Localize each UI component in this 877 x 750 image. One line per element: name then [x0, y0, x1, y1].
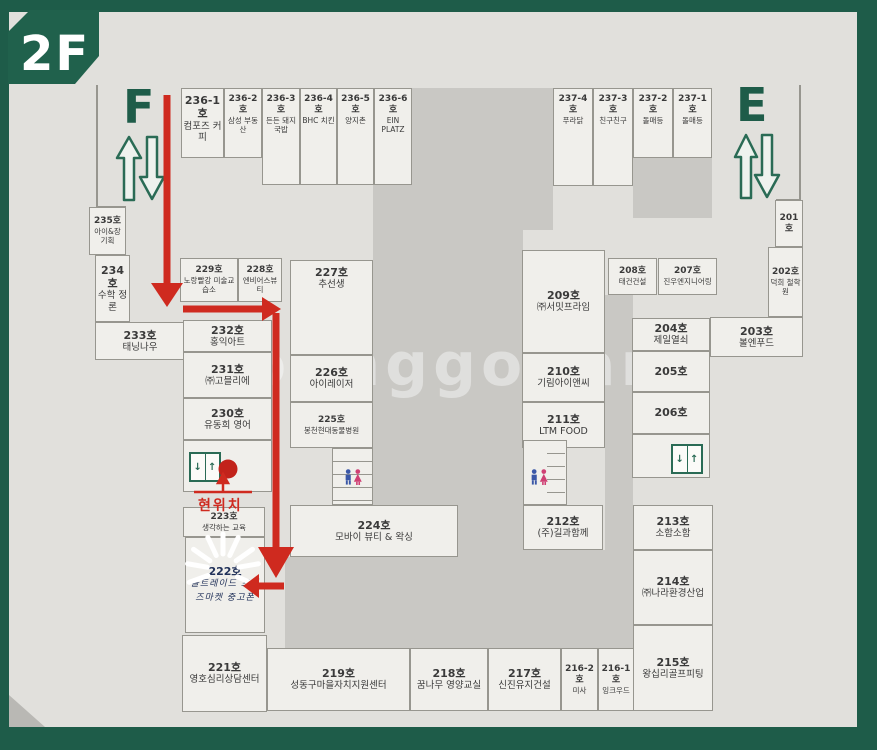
room-209: 209호㈜서밋프라임 [522, 250, 605, 353]
room-number: 237-4호 [555, 94, 591, 116]
floor-label: 2F [20, 26, 90, 82]
room-number: 236-3호 [264, 94, 298, 116]
room-number: 228호 [246, 265, 273, 276]
elevator-door-down: ↓ [673, 446, 688, 472]
elevator-cell-left: ↓↑ [183, 440, 272, 492]
room-number: 215호 [656, 656, 689, 669]
room-number: 205호 [654, 365, 687, 378]
elevator-door-up: ↑ [206, 454, 220, 480]
room-229: 229호노랑빨강 미술교습소 [180, 258, 238, 302]
room-name: 진우엔지니어링 [663, 277, 711, 286]
room-number: 235호 [94, 216, 121, 227]
room-number: 234호 [97, 264, 128, 291]
room-number: 236-1호 [183, 94, 222, 121]
room-number: 214호 [656, 575, 689, 588]
room-215: 215호왕십리골프피팅 [633, 625, 713, 711]
room-number: 211호 [547, 413, 580, 426]
room-name: ㈜나라환경산업 [642, 588, 704, 600]
room-237-3: 237-3호친구친구 [593, 88, 633, 186]
room-222: 222호올트레이드 프렌즈마켓 중고폰 [185, 537, 265, 633]
restroom-icon [341, 469, 365, 485]
room-number: 201호 [777, 213, 801, 235]
room-216-2: 216-2호미사 [561, 648, 598, 711]
room-208: 208호태건건설 [608, 258, 657, 295]
room-name: 생각하는 교육 [202, 523, 246, 532]
room-name: 양지촌 [345, 116, 366, 125]
elevator-icon: ↓↑ [671, 444, 703, 474]
frame-left [0, 0, 9, 750]
room-number: 237-3호 [595, 94, 631, 116]
room-number: 231호 [211, 363, 244, 376]
room-name: 든든 돼지국밥 [264, 116, 298, 134]
room-number: 216-2호 [563, 664, 596, 686]
elevator-door-up: ↑ [688, 446, 702, 472]
courtyard-bottom [285, 557, 523, 648]
room-number: 236-5호 [339, 94, 372, 116]
room-number: 216-1호 [600, 664, 632, 686]
room-number: 209호 [547, 289, 580, 302]
room-204: 204호제일열쇠 [632, 318, 710, 351]
room-name: 미사 [573, 686, 587, 695]
room-236-3: 236-3호든든 돼지국밥 [262, 88, 300, 185]
room-name: 돌매등 [682, 116, 703, 125]
room-236-6: 236-6호EIN PLATZ [374, 88, 412, 185]
room-name: 덕희 철학원 [770, 278, 801, 296]
room-237-4: 237-4호푸라닭 [553, 88, 593, 186]
room-name: 잉크우드 [602, 686, 630, 695]
room-name: ㈜고믈리에 [205, 376, 249, 388]
room-number: 227호 [315, 266, 348, 279]
room-name: 노랑빨강 미술교습소 [182, 276, 236, 294]
room-221: 221호영호심리상담센터 [182, 635, 267, 712]
room-name: 삼성 부동산 [226, 116, 260, 134]
elevator-door-down: ↓ [191, 454, 206, 480]
room-212: 212호(주)길과함께 [523, 505, 603, 550]
room-number: 237-1호 [675, 94, 710, 116]
room-number: 204호 [654, 322, 687, 335]
room-name: 신진유지건설 [498, 680, 550, 692]
room-number: 221호 [208, 661, 241, 674]
room-name: ㈜서밋프라임 [537, 302, 590, 314]
room-name: 모바이 뷰티 & 왁싱 [335, 532, 413, 544]
room-number: 212호 [546, 515, 579, 528]
room-237-1: 237-1호돌매등 [673, 88, 712, 158]
room-name: 성동구마을자치지원센터 [290, 680, 386, 692]
room-name: 아이레이저 [310, 379, 354, 391]
room-217: 217호신진유지건설 [488, 648, 561, 711]
room-number: 202호 [772, 267, 799, 278]
room-214: 214호㈜나라환경산업 [633, 550, 713, 625]
room-205: 205호 [632, 351, 710, 392]
room-number: 224호 [357, 519, 390, 532]
room-name: 푸라닭 [563, 116, 584, 125]
room-226: 226호아이레이저 [290, 355, 373, 402]
current-location-label: 현위치 [198, 495, 243, 515]
room-225: 225호봉천현대동물병원 [290, 402, 373, 448]
room-number: 208호 [619, 266, 646, 277]
elevator-icon: ↓↑ [189, 452, 221, 482]
room-232: 232호홍익아트 [183, 320, 272, 352]
room-number: 226호 [315, 366, 348, 379]
room-218: 218호꿈나무 영양교실 [410, 648, 488, 711]
room-number: 222호 [208, 565, 241, 578]
room-name: 엔비어스뷰티 [240, 276, 280, 294]
room-237-2: 237-2호돌매등 [633, 88, 673, 158]
room-236-1: 236-1호컴포즈 커피 [181, 88, 224, 158]
frame-bottom [0, 727, 877, 750]
room-name: 태닝나우 [123, 342, 158, 354]
room-202: 202호덕희 철학원 [768, 247, 803, 317]
room-231: 231호㈜고믈리에 [183, 352, 272, 398]
room-236-4: 236-4호BHC 치킨 [300, 88, 337, 185]
room-number: 207호 [674, 266, 701, 277]
room-224: 224호모바이 뷰티 & 왁싱 [290, 505, 458, 557]
restroom-icon [527, 469, 551, 485]
room-number: 232호 [211, 324, 244, 337]
room-number: 217호 [508, 667, 541, 680]
room-201: 201호 [775, 200, 803, 247]
room-233: 233호태닝나우 [95, 322, 185, 360]
room-name: 왕십리골프피팅 [642, 669, 703, 681]
room-name: 컴포즈 커피 [183, 121, 222, 144]
room-number: 225호 [318, 415, 345, 426]
floor-map-sign: 2F joonggonara F E 236-1호컴포즈 커피236-2호삼성 … [0, 0, 877, 750]
room-name: 추선생 [318, 279, 344, 291]
room-name: 영호심리상담센터 [190, 674, 260, 686]
room-210: 210호기림아이앤씨 [522, 353, 605, 402]
room-name: 제일열쇠 [654, 335, 689, 347]
room-number: 219호 [322, 667, 355, 680]
room-number: 210호 [547, 365, 580, 378]
room-name: 볼엔푸드 [739, 338, 774, 350]
room-227: 227호추선생 [290, 260, 373, 355]
room-name: EIN PLATZ [376, 116, 410, 134]
stair-f-label: F [123, 84, 154, 130]
room-number: 229호 [195, 265, 222, 276]
room-number: 237-2호 [635, 94, 671, 116]
room-name: 꿈나무 영양교실 [417, 680, 481, 692]
room-number: 213호 [656, 515, 689, 528]
room-number: 218호 [432, 667, 465, 680]
room-number: 203호 [740, 325, 773, 338]
restroom-cell-right [523, 440, 567, 505]
room-number: 236-6호 [376, 94, 410, 116]
room-name: 소함소함 [656, 528, 691, 540]
room-name: 친구친구 [599, 116, 627, 125]
restroom-cell-left [332, 448, 373, 505]
room-number: 236-4호 [302, 94, 335, 116]
room-228: 228호엔비어스뷰티 [238, 258, 282, 302]
room-216-1: 216-1호잉크우드 [598, 648, 634, 711]
room-219: 219호성동구마을자치지원센터 [267, 648, 410, 711]
room-207: 207호진우엔지니어링 [658, 258, 717, 295]
room-235: 235호아이&장 기획 [89, 207, 126, 255]
room-name: 올트레이드 프렌즈마켓 중고폰 [187, 578, 263, 605]
corridor-top-right [633, 158, 712, 218]
room-234: 234호수학 정론 [95, 255, 130, 322]
room-236-2: 236-2호삼성 부동산 [224, 88, 262, 158]
room-203: 203호볼엔푸드 [710, 317, 803, 357]
room-number: 206호 [654, 406, 687, 419]
room-name: 태건건설 [619, 277, 647, 286]
stair-e-label: E [736, 82, 767, 128]
room-name: 유동희 영어 [204, 420, 251, 432]
corridor-bottom-right [523, 550, 633, 648]
room-name: LTM FOOD [539, 426, 588, 438]
room-206: 206호 [632, 392, 710, 434]
room-236-5: 236-5호양지촌 [337, 88, 374, 185]
room-name: BHC 치킨 [302, 116, 334, 125]
room-number: 233호 [123, 329, 156, 342]
room-name: 기림아이앤씨 [537, 378, 589, 390]
room-name: 돌매등 [643, 116, 664, 125]
room-230: 230호유동희 영어 [183, 398, 272, 440]
room-name: (주)길과함께 [537, 528, 588, 540]
room-213: 213호소함소함 [633, 505, 713, 550]
room-name: 봉천현대동물병원 [304, 426, 359, 435]
frame-right [857, 0, 877, 750]
room-name: 홍익아트 [210, 337, 245, 349]
elevator-cell-right: ↓↑ [632, 434, 710, 478]
room-number: 230호 [211, 407, 244, 420]
room-name: 수학 정론 [97, 290, 128, 313]
room-name: 아이&장 기획 [91, 227, 124, 245]
room-number: 236-2호 [226, 94, 260, 116]
